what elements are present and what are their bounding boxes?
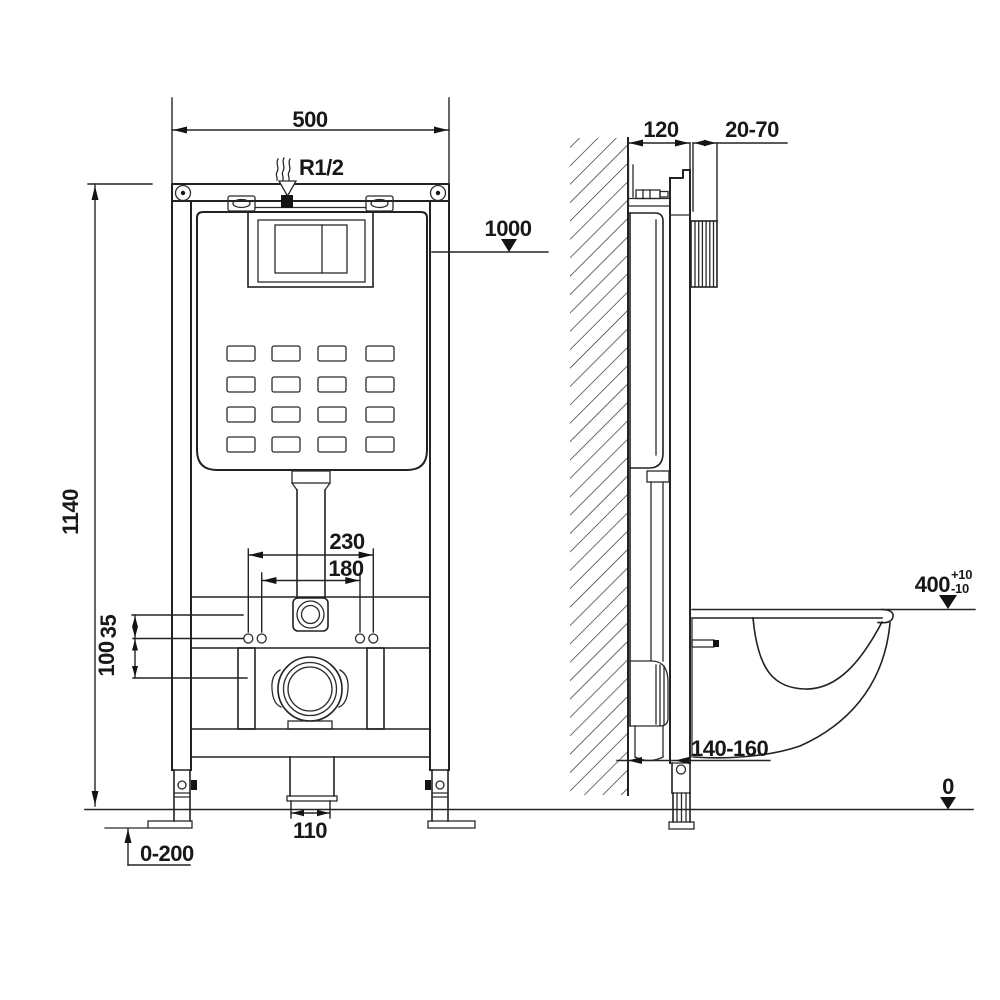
dim-total-height-label: 1140 [58,489,83,535]
dim-bowl-height: 400 +10 -10 [692,567,975,610]
flush-buttons [275,225,347,273]
fixing-bolt-hole [257,634,266,643]
flush-pipe [292,471,330,598]
water-inlet-label: R1/2 [299,155,344,180]
frame-upright-side [670,170,690,763]
dim-outlet-width-label: 110 [293,818,327,843]
technical-drawing-canvas: 500 R1/2 1000 1140 230 [0,0,1000,1000]
front-view [105,158,475,828]
dim-wall-finish: 20-70 [693,117,787,221]
dim-bowl-height-label: 400 [915,572,950,597]
dim-bolt-spacing-inner: 180 [262,556,364,632]
drain-bend-side [631,661,668,726]
hanger-tabs [228,196,393,211]
flush-plate-side [691,221,717,287]
dim-drain-offset-label: 100 [94,641,119,676]
dim-bowl-height-tol-plus: +10 [951,567,972,582]
cistern-grid [227,346,394,452]
dim-total-height: 1140 [58,184,152,806]
fixing-stud [692,640,719,647]
dim-panel-height-label: 1000 [485,216,532,241]
dim-outlet-width: 110 [291,801,330,843]
wall-hatch [570,138,628,795]
dim-outlet-distance-label: 140-160 [691,736,769,761]
flush-plate [248,212,373,287]
dim-foot-adjustment-label: 0-200 [140,841,194,866]
wc-frame-installation-diagram: 500 R1/2 1000 1140 230 [0,0,1000,1000]
inlet-arrow-icon [279,181,296,196]
dim-frame-depth-label: 120 [643,117,678,142]
dim-bowl-height-tol-minus: -10 [951,581,969,596]
right-foot [425,770,475,828]
dim-floor-level-label: 0 [942,774,954,799]
dim-frame-width-label: 500 [292,107,327,132]
drain-socket [272,657,348,729]
dim-flush-offset-label: 35 [96,615,121,639]
dim-offsets-left: 35 100 [94,615,247,678]
wall-bracket [629,158,671,206]
fixing-bolt-hole [369,634,378,643]
left-foot [105,770,197,828]
outlet-pipe [287,757,337,801]
dim-foot-adjustment: 0-200 [125,829,195,866]
drain-section [191,648,430,757]
mounting-frame [172,184,449,770]
dimensions: 500 R1/2 1000 1140 230 [58,98,975,866]
cistern-side [630,213,669,761]
dim-wall-finish-label: 20-70 [725,117,779,142]
dim-outlet-distance: 140-160 [617,736,770,764]
corner-screw-icon [176,186,446,201]
fixing-bolt-hole [356,634,365,643]
dim-floor-level: 0 [940,774,956,810]
fixing-band [191,597,430,648]
side-foot [669,763,694,829]
fixing-bolt-hole [244,634,253,643]
dim-bolt-spacing-inner-label: 180 [328,556,363,581]
flush-elbow [293,598,328,631]
side-view [570,138,893,829]
dim-frame-depth: 120 [628,117,690,169]
dim-bolt-spacing-outer-label: 230 [329,529,364,554]
cistern [197,212,427,470]
